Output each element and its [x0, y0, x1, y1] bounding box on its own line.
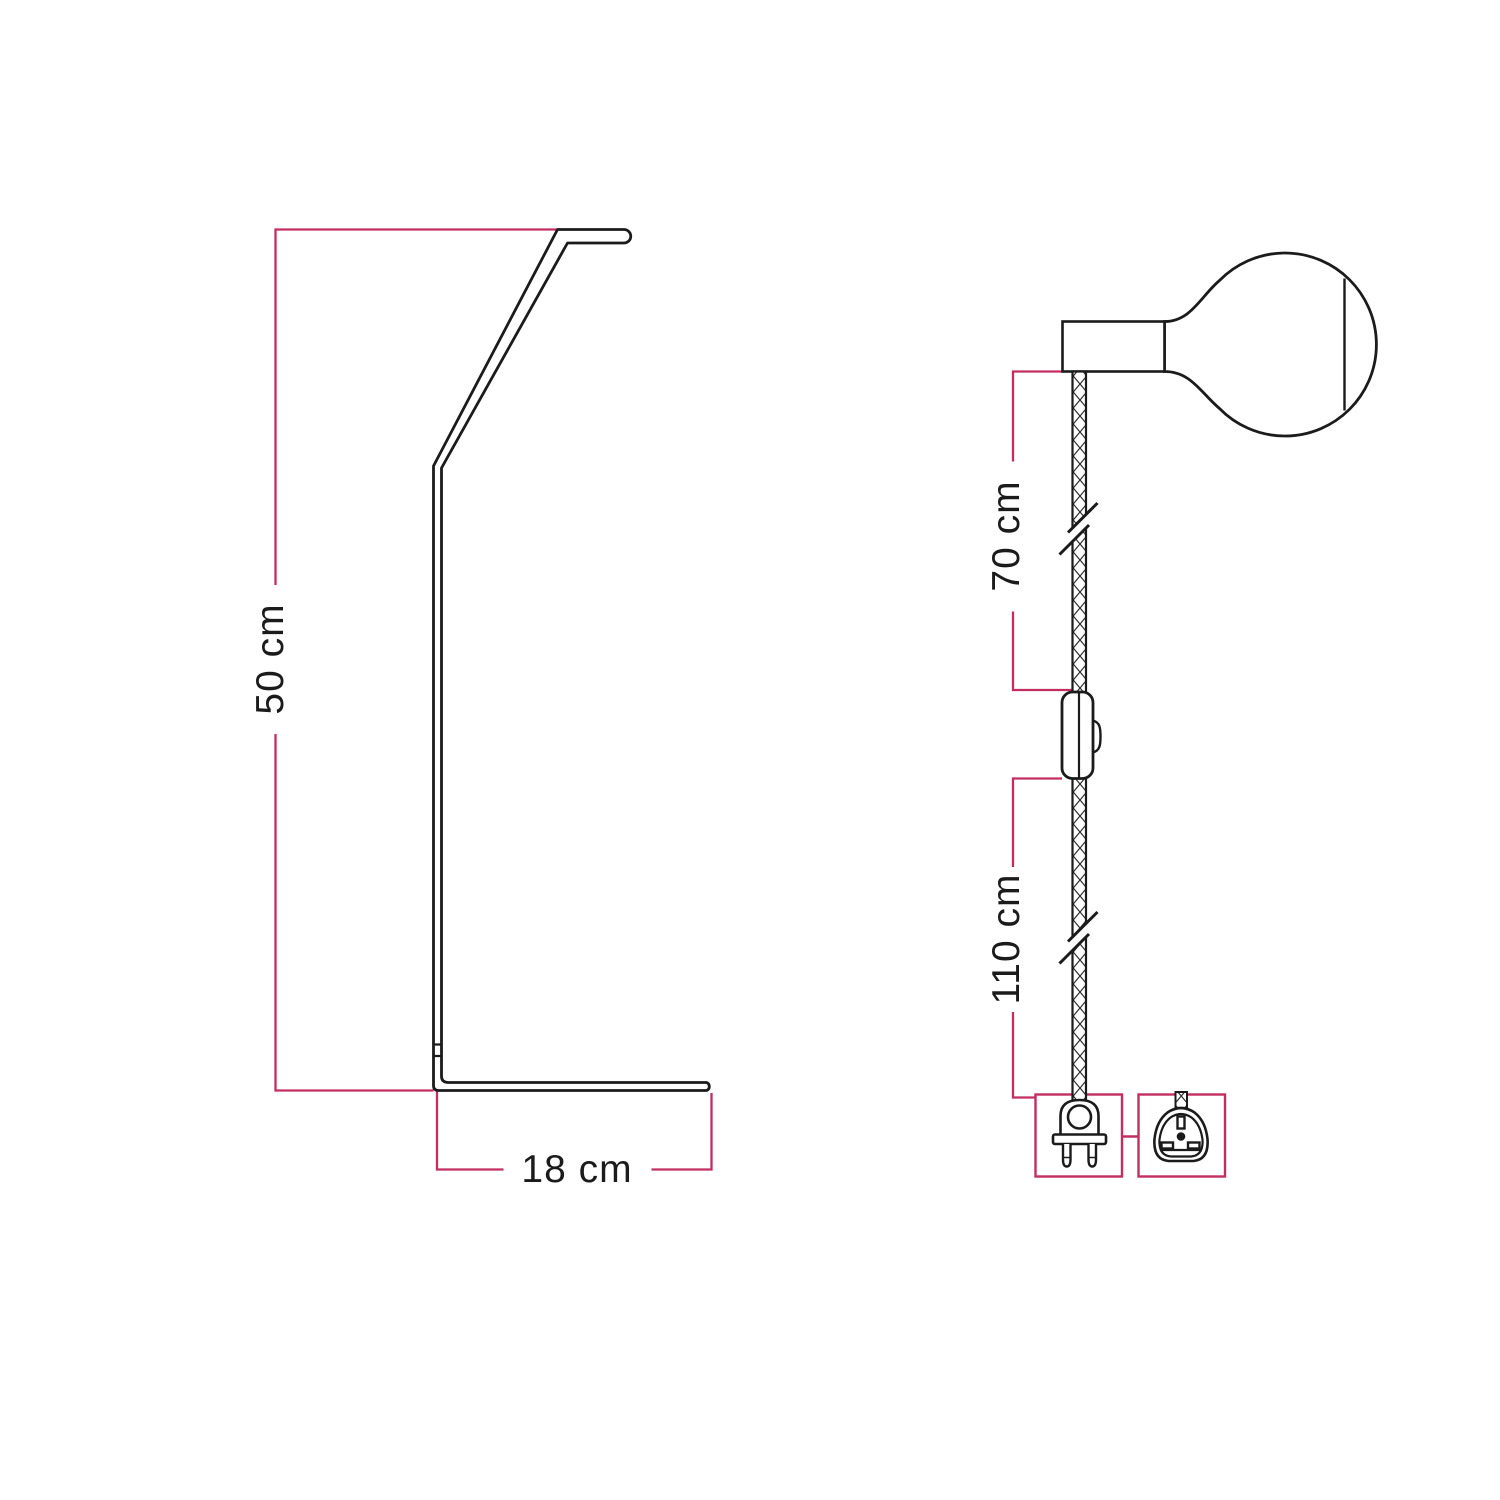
eu-plug-icon — [1053, 1100, 1106, 1167]
base-dimension-label: 18 cm — [521, 1148, 632, 1192]
dimension-diagram: 50 cm 18 cm 70 cm 110 cm — [0, 0, 1500, 1500]
diagram-linework — [0, 0, 1500, 1500]
lamp-stand-profile — [434, 230, 710, 1091]
upper-cable-dimension-label: 70 cm — [985, 480, 1029, 591]
lamp-stand-outline — [434, 230, 710, 1091]
lamp-stand-height-dimension — [276, 230, 558, 1091]
height-dimension-label: 50 cm — [249, 603, 293, 714]
light-bulb-icon — [1165, 253, 1377, 436]
lower-cable-dimension-label: 110 cm — [985, 874, 1029, 1005]
lamp-holder-icon — [1063, 322, 1165, 372]
inline-switch-icon — [1062, 692, 1101, 779]
pendant-lamp-drawing — [1053, 253, 1376, 1167]
uk-plug-icon — [1154, 1092, 1207, 1161]
